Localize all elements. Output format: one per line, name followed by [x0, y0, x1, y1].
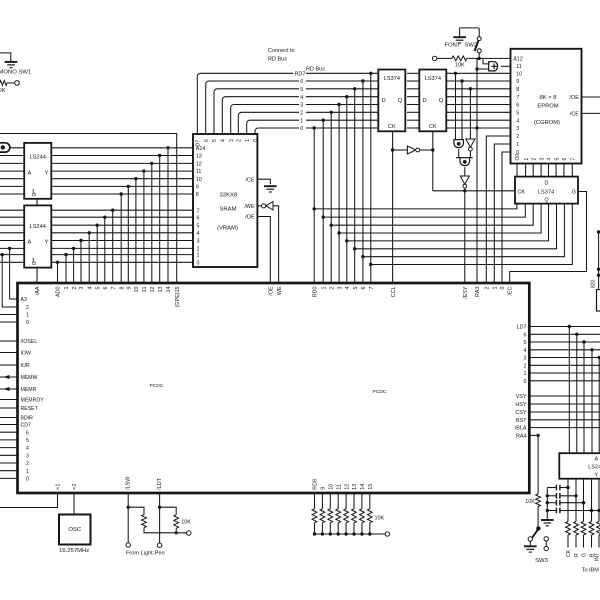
svg-text:3: 3 [197, 239, 200, 245]
svg-text:3: 3 [79, 287, 85, 290]
svg-text:1: 1 [321, 287, 327, 290]
svg-text:Q: Q [398, 98, 403, 104]
svg-text:LS374: LS374 [538, 189, 554, 195]
svg-text:D: D [382, 98, 386, 104]
svg-text:5: 5 [197, 223, 200, 229]
svg-text:2: 2 [197, 247, 200, 253]
svg-text:9: 9 [321, 487, 327, 490]
svg-text:9: 9 [516, 79, 519, 85]
svg-text:10: 10 [516, 71, 522, 77]
svg-text:BDIR: BDIR [21, 416, 34, 422]
svg-text:/AA: /AA [35, 286, 41, 295]
svg-text:7: 7 [516, 95, 519, 101]
svg-text:RD Bus: RD Bus [306, 66, 325, 72]
svg-text:/LSW: /LSW [126, 476, 132, 490]
svg-text:10K: 10K [375, 516, 385, 522]
svg-text:8: 8 [119, 287, 125, 290]
svg-text:RD7: RD7 [295, 72, 306, 78]
svg-text:1: 1 [493, 287, 499, 290]
svg-text:OSC: OSC [68, 527, 82, 533]
svg-text:WE: WE [277, 286, 283, 295]
svg-text:7: 7 [111, 287, 117, 290]
svg-text:CK: CK [388, 124, 396, 130]
svg-text:IOW: IOW [21, 351, 31, 357]
svg-text:2: 2 [26, 461, 29, 467]
svg-text:3: 3 [524, 356, 527, 362]
svg-text:14: 14 [360, 484, 366, 490]
svg-text:IOR: IOR [21, 363, 30, 369]
svg-text:×1: ×1 [56, 484, 62, 490]
svg-text:6: 6 [562, 158, 568, 161]
svg-text:RD0: RD0 [312, 287, 318, 298]
svg-text:MEMR: MEMR [21, 387, 37, 393]
svg-text:4: 4 [516, 118, 519, 124]
svg-text:(CGROM): (CGROM) [534, 120, 560, 126]
svg-text:LS244: LS244 [588, 465, 600, 471]
svg-text:From Light-Pen: From Light-Pen [126, 551, 165, 557]
svg-text:×2: ×2 [72, 484, 78, 490]
svg-text:10K: 10K [181, 520, 191, 526]
svg-text:6: 6 [26, 430, 29, 436]
svg-text:A14: A14 [196, 146, 206, 152]
svg-text:3: 3 [229, 139, 235, 142]
svg-text:1: 1 [64, 287, 70, 290]
svg-text:A: A [28, 240, 32, 246]
svg-text:4: 4 [345, 287, 351, 290]
svg-text:A: A [28, 170, 32, 176]
svg-text:2: 2 [524, 363, 527, 369]
svg-text:/IOSEL: /IOSEL [21, 339, 38, 345]
svg-text:5: 5 [524, 340, 527, 346]
svg-text:4: 4 [300, 95, 303, 101]
svg-text:0: 0 [253, 139, 259, 142]
svg-text:A3: A3 [21, 297, 27, 303]
svg-text:2: 2 [72, 287, 78, 290]
svg-text:4: 4 [197, 231, 200, 237]
svg-text:10: 10 [329, 484, 335, 490]
svg-text:RA4: RA4 [516, 434, 527, 440]
svg-text:2: 2 [236, 139, 242, 142]
svg-text:/BLA: /BLA [515, 426, 527, 432]
svg-text:4: 4 [547, 158, 553, 161]
svg-text:LD7: LD7 [517, 325, 527, 331]
svg-text:SRAM: SRAM [219, 207, 236, 213]
svg-text:14: 14 [166, 287, 172, 293]
svg-text:/EC: /EC [508, 286, 514, 295]
svg-text:8K × 8: 8K × 8 [540, 95, 557, 101]
svg-text:1: 1 [524, 158, 530, 161]
svg-text:7: 7 [197, 208, 200, 214]
svg-text:Connect to: Connect to [268, 48, 295, 54]
svg-text:0: 0 [300, 126, 303, 132]
svg-text:/WE: /WE [244, 204, 255, 210]
svg-text:0: 0 [26, 477, 29, 483]
svg-text:HSY: HSY [515, 402, 526, 408]
svg-text:G: G [582, 553, 588, 557]
svg-text:32KX8: 32KX8 [220, 193, 238, 199]
svg-text:0K: 0K [0, 88, 6, 94]
svg-text:CD7: CD7 [21, 423, 31, 429]
svg-text:CK: CK [518, 189, 526, 195]
svg-text:/CE: /CE [570, 112, 579, 118]
svg-text:D: D [423, 98, 427, 104]
svg-text:To IBM: To IBM [582, 568, 600, 574]
svg-text:RESET: RESET [21, 406, 39, 412]
svg-text:4: 4 [220, 139, 226, 142]
svg-text:10K: 10K [525, 499, 535, 505]
svg-text:15: 15 [368, 484, 374, 490]
svg-text:8: 8 [516, 87, 519, 93]
svg-text:4: 4 [524, 348, 527, 354]
svg-text:VSY: VSY [516, 394, 527, 400]
svg-text:Q: Q [439, 98, 444, 104]
svg-text:INT: INT [595, 552, 600, 561]
svg-text:5: 5 [95, 287, 101, 290]
svg-text:Q: Q [544, 197, 549, 203]
svg-text:AD0: AD0 [56, 287, 62, 298]
svg-text:6: 6 [361, 287, 367, 290]
svg-text:1: 1 [300, 118, 303, 124]
svg-text:SW2: SW2 [465, 43, 478, 49]
svg-text:RD8: RD8 [313, 479, 319, 490]
svg-text:11: 11 [142, 287, 148, 293]
svg-text:6: 6 [103, 287, 109, 290]
svg-text:0: 0 [524, 379, 527, 385]
svg-text:MEMRDY: MEMRDY [21, 398, 45, 404]
svg-text:5: 5 [212, 139, 218, 142]
svg-text:4: 4 [87, 287, 93, 290]
svg-text:2: 2 [485, 287, 491, 290]
svg-text:5: 5 [300, 87, 303, 93]
svg-text:5: 5 [353, 287, 359, 290]
svg-text:FONT: FONT [445, 43, 461, 49]
svg-text:LS374: LS374 [425, 76, 441, 82]
svg-text:16.257MHz: 16.257MHz [59, 548, 89, 554]
svg-text:10K: 10K [455, 63, 465, 69]
svg-text:2: 2 [531, 158, 537, 161]
svg-text:3: 3 [539, 158, 545, 161]
svg-text:2: 2 [516, 134, 519, 140]
svg-text:1: 1 [197, 253, 200, 259]
svg-text:11: 11 [196, 169, 202, 175]
svg-text:10: 10 [196, 177, 202, 183]
svg-text:13: 13 [352, 484, 358, 490]
svg-text:7: 7 [571, 158, 577, 161]
svg-text:LS244: LS244 [29, 154, 45, 160]
svg-text:R: R [574, 553, 580, 557]
svg-text:5: 5 [26, 438, 29, 444]
svg-text:PCDC: PCDC [150, 383, 164, 389]
svg-text:8: 8 [196, 192, 199, 198]
svg-text:0: 0 [500, 287, 506, 290]
svg-text:4: 4 [26, 446, 29, 452]
svg-text:2: 2 [300, 111, 303, 117]
svg-text:5: 5 [516, 110, 519, 116]
svg-text:LS374: LS374 [384, 76, 400, 82]
svg-text:12: 12 [150, 287, 156, 293]
svg-text:CK: CK [566, 549, 572, 557]
svg-text:LS244: LS244 [29, 224, 45, 230]
svg-text:0: 0 [197, 260, 200, 266]
svg-text:12: 12 [344, 484, 350, 490]
svg-text:12: 12 [196, 162, 202, 168]
svg-text:/LDT: /LDT [157, 477, 163, 489]
svg-text:(GPE)15: (GPE)15 [175, 287, 181, 308]
svg-text:9: 9 [127, 287, 133, 290]
svg-text:BST: BST [516, 418, 527, 424]
svg-text:O0: O0 [515, 154, 521, 161]
svg-text:/OE: /OE [245, 215, 255, 221]
svg-text:13: 13 [158, 287, 164, 293]
svg-text:3: 3 [516, 126, 519, 132]
svg-text:Y: Y [45, 240, 49, 246]
svg-text:SW3: SW3 [535, 558, 548, 564]
svg-text:5: 5 [554, 158, 560, 161]
svg-text:6: 6 [524, 332, 527, 338]
svg-text:0: 0 [26, 320, 29, 326]
svg-text:1: 1 [26, 469, 29, 475]
svg-text:CCL: CCL [391, 287, 397, 298]
svg-text:RD Bus: RD Bus [268, 57, 287, 63]
svg-text:G: G [572, 189, 576, 195]
svg-text:13: 13 [196, 154, 202, 160]
svg-text:1: 1 [245, 139, 251, 142]
svg-text:EPROM: EPROM [537, 104, 558, 110]
svg-text:1: 1 [26, 313, 29, 319]
svg-text:RA3: RA3 [475, 287, 481, 298]
svg-text:3: 3 [26, 453, 29, 459]
svg-text:1: 1 [516, 142, 519, 148]
svg-text:/OE: /OE [269, 286, 275, 296]
svg-text:/CE: /CE [246, 177, 255, 183]
svg-text:D: D [545, 180, 549, 186]
svg-text:7: 7 [369, 287, 375, 290]
svg-text:11: 11 [516, 64, 522, 70]
svg-text:Y: Y [45, 170, 49, 176]
svg-text:Y: Y [594, 473, 598, 479]
svg-text:(VRAM): (VRAM) [217, 226, 238, 232]
svg-text:A12: A12 [513, 57, 523, 63]
svg-text:MONO SW1: MONO SW1 [0, 69, 31, 75]
svg-text:3: 3 [300, 103, 303, 109]
svg-text:2: 2 [26, 305, 29, 311]
svg-text:CK: CK [429, 124, 437, 130]
svg-text:/ESY: /ESY [463, 286, 469, 299]
svg-text:A: A [594, 457, 598, 463]
svg-text:9: 9 [196, 185, 199, 191]
svg-text:2: 2 [329, 287, 335, 290]
svg-text:PCDC: PCDC [373, 389, 387, 395]
svg-text:6: 6 [197, 215, 200, 221]
svg-text:3: 3 [337, 287, 343, 290]
svg-text:1: 1 [524, 371, 527, 377]
svg-text:MEMW: MEMW [21, 375, 38, 381]
svg-text:6: 6 [516, 103, 519, 109]
svg-text:10: 10 [134, 287, 140, 293]
svg-text:/OE: /OE [570, 95, 580, 101]
svg-text:6: 6 [300, 79, 303, 85]
svg-text:CSY: CSY [515, 410, 526, 416]
svg-text:6: 6 [204, 139, 210, 142]
svg-text:11: 11 [336, 484, 342, 490]
svg-text:820: 820 [591, 279, 597, 288]
